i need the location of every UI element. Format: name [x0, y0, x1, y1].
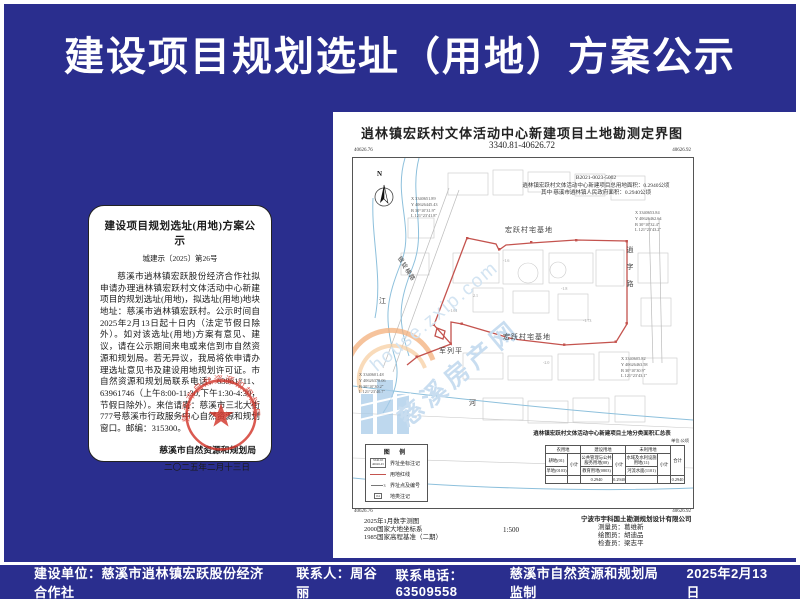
corner-coord-bottom-left-x: 40626.76: [354, 509, 396, 514]
river-bottom-label: 河: [469, 398, 477, 408]
legend-title: 图 例: [369, 447, 424, 456]
notice-document: 建设项目规划选址(用地)方案公示 城建示〔2025〕第26号 慈溪市逍林镇宏跃股…: [88, 205, 272, 462]
coordinate-callout: X 3340601.48Y 40626378.06 B 30°10′30.2″L…: [359, 372, 413, 395]
area-table-unit: 单位:公顷: [513, 438, 689, 444]
map-legend: 图 例 3340.6540626.45 界址坐标注记 用地红线 3 界址点及编号: [365, 444, 428, 502]
boundary-point-symbol: 3: [369, 483, 387, 488]
footer-date: 2025年2月13日: [687, 563, 770, 599]
contact-person: 联系人：周谷丽: [296, 563, 379, 599]
area-table-title: 逍林镇宏跃村文体活动中心新建项目土地分类面积汇总表: [513, 429, 691, 437]
coordinate-callout: X 3340653.84Y 40626462.64 B 30°10′32.4″L…: [635, 210, 689, 233]
notice-doc-number: 城建示〔2025〕第26号: [100, 253, 260, 264]
supervisor: 慈溪市自然资源和规划局监制: [510, 563, 665, 599]
legend-item: 3340.6540626.45 界址坐标注记: [369, 459, 424, 467]
annotation-area-detail: 其中 慈溪市逍林镇人民政府面积：0.2940公顷: [503, 190, 689, 198]
map-annotation: B2021-0023-5002 逍林镇宏跃村文体活动中心新建项目总用地面积：0.…: [503, 175, 689, 198]
corner-coord-top-right-x: 40626.92: [649, 148, 691, 153]
north-arrow-icon: [375, 185, 393, 206]
legend-item: 用地红线: [369, 470, 424, 478]
footer-bar: 建设单位：慈溪市逍林镇宏跃股份经济合作社 联系人：周谷丽 联系电话：635095…: [0, 562, 800, 599]
spot-height: -1.6: [503, 258, 509, 263]
notice-date: 二〇二五年二月十三日: [100, 461, 260, 473]
spot-height: -2.0: [543, 360, 549, 365]
spot-height: -1.73: [583, 318, 591, 323]
area-table: 农用地 建设用地 未利用地 合计 耕地(01) 小计 公共管理与公共服务用地(0…: [545, 445, 685, 484]
parcel-label-top: 宏跃村宅基地: [505, 225, 553, 235]
survey-map-panel: 逍林镇宏跃村文体活动中心新建项目土地勘测定界图 3340.81-40626.72…: [333, 112, 797, 558]
coordinate-callout: X 3340605.82Y 40626463.58 B 30°10′30.9″L…: [621, 356, 675, 379]
official-seal-stamp: 慈溪市自然资源和规划局: [179, 373, 263, 457]
north-label: N: [377, 170, 383, 178]
river-left-label: 江: [379, 296, 387, 306]
legend-item: 04 地类注记: [369, 492, 424, 500]
house-label: 军列平: [439, 346, 463, 356]
road-right-label: 逍字路: [625, 246, 635, 297]
boundary-coord-symbol: 3340.6540626.45: [369, 458, 387, 467]
page-title: 建设项目规划选址（用地）方案公示: [0, 4, 800, 102]
spot-height: -1.61: [449, 308, 457, 313]
coordinate-callout: X 3340651.89Y 40626445.43 B 30°10′31.9″L…: [411, 196, 465, 219]
contact-phone: 联系电话：63509558: [396, 565, 510, 599]
map-notes-right: 宁波市宇科国土勘测规划设计有限公司 测量员：葛维新 绘图员：胡迪品 检查员：梁志…: [581, 516, 692, 549]
parcel-label-bottom: 宏跃村宅基地: [503, 332, 551, 342]
spot-height: 2.1: [473, 293, 478, 298]
area-summary: 逍林镇宏跃村文体活动中心新建项目土地分类面积汇总表 单位:公顷 农用地 建设用地…: [513, 429, 691, 484]
map-notes-left: 2025年1月数字测图 2000国家大地坐标系 1985国家高程基准（二期）: [364, 518, 442, 542]
notice-title: 建设项目规划选址(用地)方案公示: [100, 218, 260, 248]
land-class-symbol: 04: [369, 493, 387, 499]
project-code: B2021-0023-5002: [503, 175, 689, 183]
corner-coord-bottom-right-x: 40626.92: [649, 509, 691, 514]
red-line-symbol: [369, 474, 387, 475]
legend-item: 3 界址点及编号: [369, 481, 424, 489]
construction-unit: 建设单位：慈溪市逍林镇宏跃股份经济合作社: [34, 563, 272, 599]
corner-coord-top-left-x: 40626.76: [354, 148, 396, 153]
map-scale: 1:500: [503, 526, 519, 534]
map-frame: house.zxip.com 慈溪房产网 B2021-0023-5002 逍林镇…: [352, 157, 694, 509]
notice-poster: 建设项目规划选址（用地）方案公示 建设项目规划选址(用地)方案公示 城建示〔20…: [0, 0, 800, 599]
spot-height: -1.8: [561, 286, 567, 291]
